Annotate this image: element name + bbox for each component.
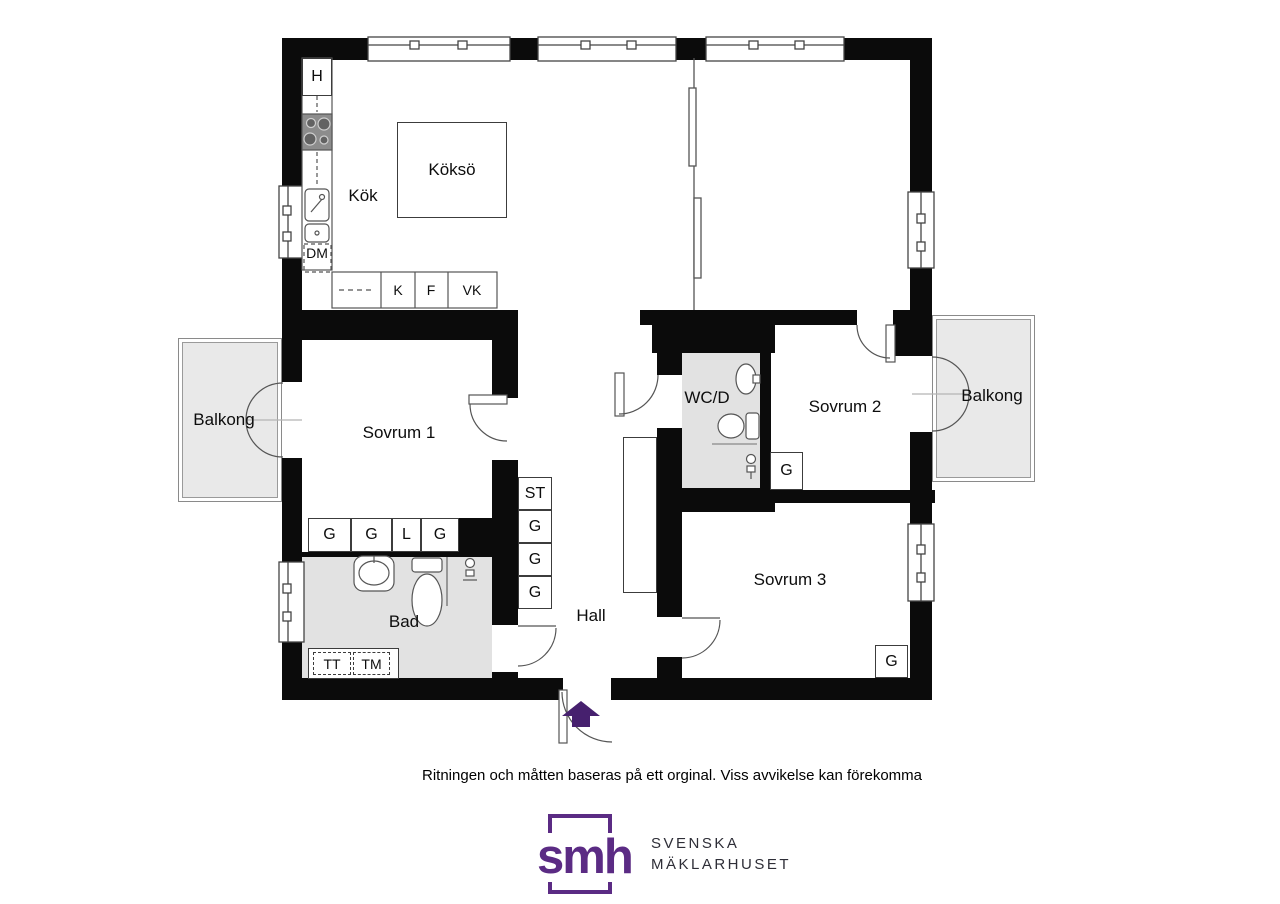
smh-logo-monogram: smh [535, 833, 634, 882]
disclaimer-text: Ritningen och måtten baseras på ett orgi… [422, 767, 922, 784]
floorplan-page: H DM K F VK Köksö G G L G ST G G G G G T… [0, 0, 1280, 904]
wardrobe-g-box: G [421, 518, 459, 552]
wc-toilet-icon [746, 413, 759, 439]
wardrobe-g-box: G [518, 510, 552, 543]
room-label-kok: Kök [348, 186, 377, 206]
window [538, 37, 676, 61]
door-leaf-sovrum2 [886, 325, 895, 362]
dishwasher-label: DM [306, 245, 328, 261]
wardrobe-g-box: G [351, 518, 392, 552]
window [279, 562, 304, 642]
wardrobe-g-box: G [770, 452, 803, 490]
wardrobe-g-box: G [875, 645, 908, 678]
hall-closet [623, 437, 657, 593]
door-swing-wcd [619, 375, 658, 414]
washer-box: TM [353, 652, 390, 675]
vk-label: VK [463, 282, 482, 298]
dryer-box: TT [313, 652, 351, 675]
room-label-balkong-left: Balkong [193, 410, 254, 430]
wc-fixtures [712, 364, 760, 479]
wardrobe-g-box: G [518, 576, 552, 609]
bad-toilet-icon [412, 558, 442, 572]
fridge-label: K [393, 282, 402, 298]
window [279, 186, 304, 258]
laundry-unit: TT TM [308, 648, 399, 679]
freezer-label: F [427, 282, 436, 298]
window [368, 37, 510, 61]
room-label-bad: Bad [389, 612, 419, 632]
wardrobe-g-box: G [308, 518, 351, 552]
brand-name-line2: MÄKLARHUSET [651, 856, 791, 873]
brand-name-line1: SVENSKA [651, 835, 739, 852]
room-label-wcd: WC/D [684, 388, 729, 408]
wc-mixer-icon [747, 455, 756, 464]
kitchen-island: Köksö [397, 122, 507, 218]
linen-l-box: L [392, 518, 421, 552]
door-swing-bad [518, 628, 556, 666]
wardrobe-g-box: G [518, 543, 552, 576]
glass-partition [689, 58, 701, 310]
room-label-sovrum3: Sovrum 3 [754, 570, 827, 590]
bad-mixer-icon [466, 559, 475, 568]
entrance-door-leaf [559, 690, 567, 743]
door-leaf-sovrum1 [469, 395, 507, 404]
door-leaf-wcd [615, 373, 624, 416]
cleaning-st-box: ST [518, 477, 552, 510]
door-swing-sovrum2 [857, 325, 890, 358]
room-label-sovrum2: Sovrum 2 [809, 397, 882, 417]
room-label-sovrum1: Sovrum 1 [363, 423, 436, 443]
window [706, 37, 844, 61]
door-swing-sovrum3 [682, 620, 720, 658]
hood-box: H [302, 58, 332, 96]
room-label-balkong-right: Balkong [961, 386, 1022, 406]
entrance-arrow-icon [562, 701, 600, 727]
room-label-hall: Hall [576, 606, 605, 626]
door-swing-sovrum1 [470, 404, 507, 441]
